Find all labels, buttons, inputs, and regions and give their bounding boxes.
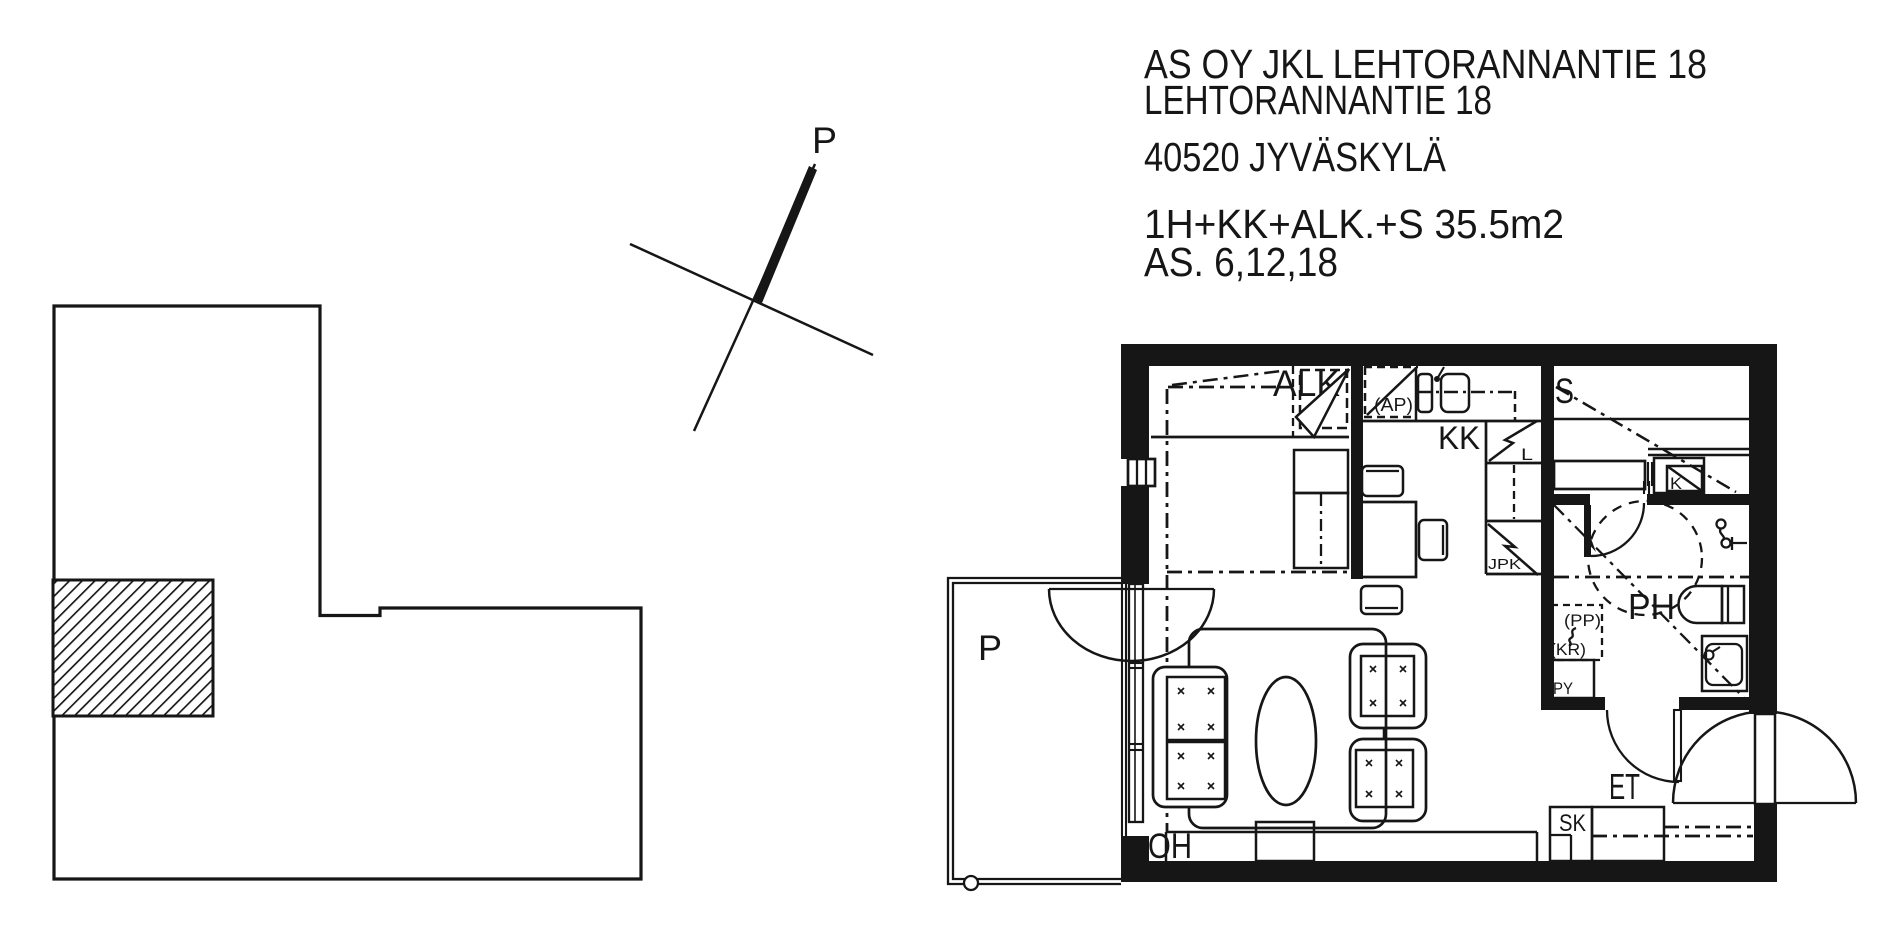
svg-text:(PP): (PP)	[1564, 611, 1601, 630]
svg-text:SK: SK	[1559, 810, 1586, 837]
svg-text:ET: ET	[1609, 766, 1640, 807]
svg-text:40520 JYVÄSKYLÄ: 40520 JYVÄSKYLÄ	[1144, 134, 1447, 180]
svg-text:L: L	[1521, 445, 1533, 464]
svg-text:(KR): (KR)	[1550, 640, 1586, 659]
svg-text:JPK: JPK	[1488, 556, 1521, 573]
svg-text:LEHTORANNANTIE 18: LEHTORANNANTIE 18	[1144, 77, 1492, 123]
svg-text:K: K	[1670, 474, 1683, 493]
svg-text:PY: PY	[1553, 679, 1573, 698]
svg-text:KK: KK	[1438, 420, 1480, 456]
svg-text:P: P	[812, 120, 837, 161]
svg-text:P: P	[978, 629, 1002, 668]
svg-text:AS. 6,12,18: AS. 6,12,18	[1144, 239, 1338, 285]
svg-text:(AP): (AP)	[1374, 395, 1413, 415]
